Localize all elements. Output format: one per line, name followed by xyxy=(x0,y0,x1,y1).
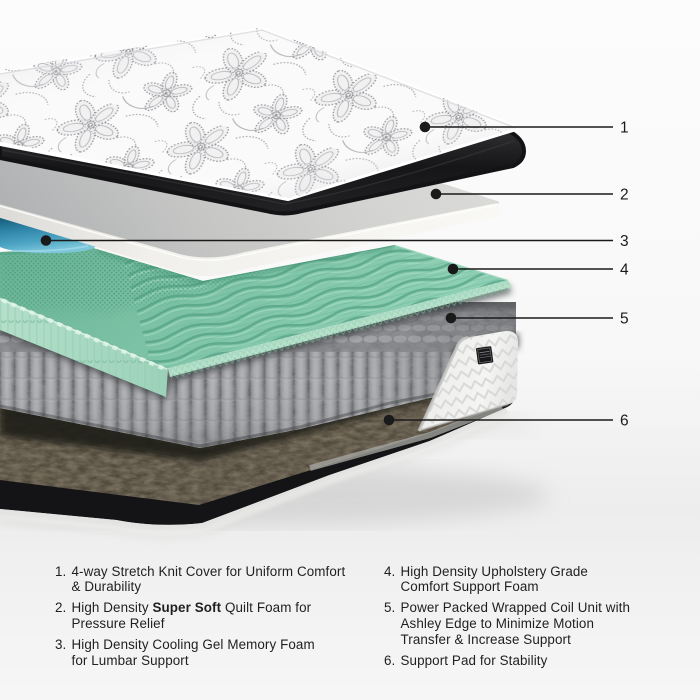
svg-text:2: 2 xyxy=(620,187,629,204)
svg-text:4: 4 xyxy=(620,262,629,279)
svg-text:1: 1 xyxy=(620,120,629,137)
svg-text:6: 6 xyxy=(620,413,629,430)
svg-text:3: 3 xyxy=(620,233,629,250)
svg-text:5: 5 xyxy=(620,311,629,328)
